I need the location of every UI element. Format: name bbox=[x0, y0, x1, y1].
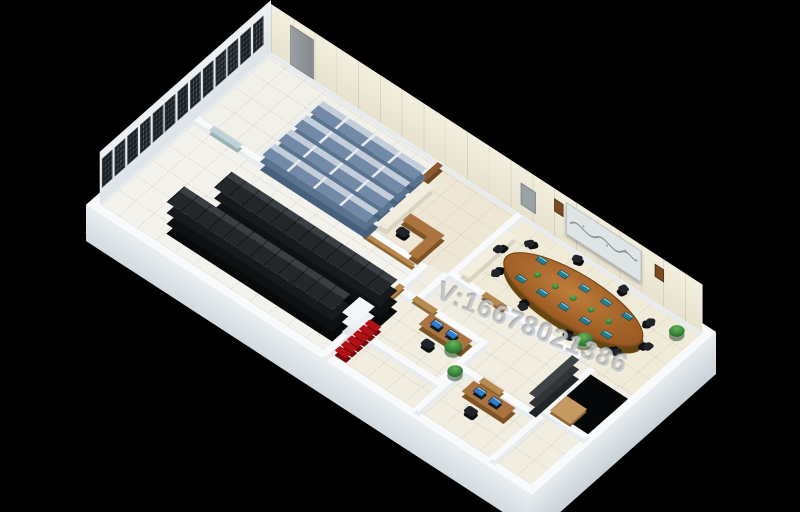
conference-chair bbox=[646, 318, 656, 326]
electrical-panel bbox=[521, 182, 536, 214]
window-vent-panel bbox=[153, 105, 163, 143]
window-vent-panel bbox=[203, 60, 213, 98]
render-canvas: V:16678021386 bbox=[0, 0, 800, 512]
window-vent-panel bbox=[253, 16, 263, 54]
wall-speaker-icon bbox=[554, 198, 563, 217]
window-vent-panel bbox=[127, 127, 137, 165]
window-vent-panel bbox=[190, 71, 200, 109]
window-vent-panel bbox=[228, 38, 238, 76]
window-vent-panel bbox=[178, 82, 188, 120]
window-vent-panel bbox=[215, 49, 225, 87]
window-vent-panel bbox=[165, 94, 175, 132]
window-vent-panel bbox=[115, 138, 125, 176]
window-vent-panel bbox=[140, 116, 150, 154]
window-vent-panel bbox=[240, 27, 250, 65]
window-vent-panel bbox=[102, 149, 112, 187]
wall-speaker-icon bbox=[655, 264, 664, 283]
conference-chair bbox=[491, 269, 501, 277]
